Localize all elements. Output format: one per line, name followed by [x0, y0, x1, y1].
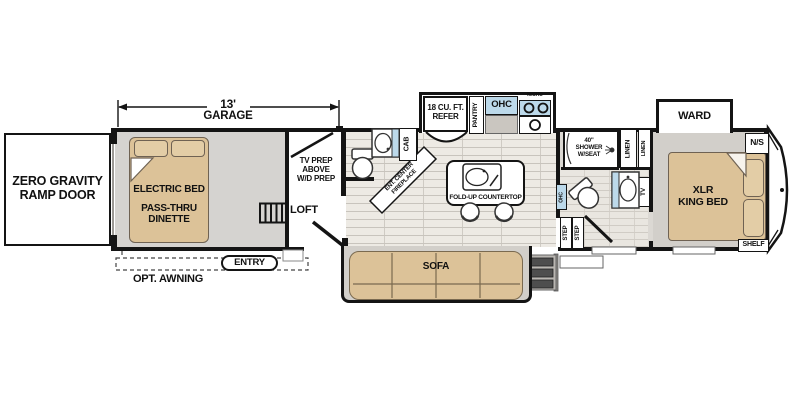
step-2-label: STEP	[572, 217, 584, 249]
microwave-cabinet	[519, 100, 551, 116]
ramp-door-label: ZERO GRAVITY RAMP DOOR	[8, 175, 107, 203]
sofa	[349, 251, 523, 300]
kitchen-counter	[485, 115, 518, 134]
ohc-label: OHC	[485, 100, 518, 110]
linen-2-label: LINEN	[639, 129, 650, 168]
dim-corner	[336, 126, 343, 132]
entry-label: ENTRY	[221, 258, 278, 268]
dim-arrow-left	[118, 104, 127, 111]
countertop-label: FOLD-UP COUNTERTOP	[447, 194, 524, 201]
nightstand-label: N/S	[745, 138, 769, 147]
dim-arrow-right	[330, 104, 339, 111]
pantry-label: PANTRY	[471, 96, 481, 134]
dim-garage-label: GARAGE	[188, 110, 268, 123]
sofa-label: SOFA	[396, 261, 476, 272]
awning-outline	[116, 251, 308, 270]
shelf-label: SHELF	[738, 241, 769, 249]
opt-awning-label: OPT. AWNING	[108, 273, 228, 285]
loft-label: LOFT	[279, 204, 329, 216]
garage-bed-pillow-right	[171, 140, 205, 157]
bath-ohc-label: OHC	[557, 184, 566, 210]
electric-bed-label: ELECTRIC BED	[123, 184, 215, 195]
micro-label: MICRO	[519, 93, 551, 99]
bath-door-swing	[585, 216, 612, 242]
cooktop	[519, 116, 551, 134]
ward-label: WARD	[656, 110, 733, 122]
entry-door-swing	[313, 222, 346, 248]
loft-door-swing	[291, 133, 333, 157]
bed-pillow-top	[743, 159, 764, 197]
step-1-label: STEP	[560, 217, 572, 249]
front-nose-cap	[768, 128, 787, 251]
dinette-label: PASS-THRU DINETTE	[123, 203, 215, 225]
ramp-opening-line	[112, 144, 114, 235]
linen-1-label: LINEN	[623, 130, 635, 169]
rv-floorplan: 13' GARAGE ZERO GRAVITY RAMP DOOR ELECTR…	[0, 0, 800, 400]
tv-prep-label: TV PREP ABOVE W/D PREP	[286, 157, 346, 183]
refer-label: 18 CU. FT. REFER	[423, 104, 468, 122]
cab-label: CAB	[403, 128, 413, 161]
king-bed-label: XLR KING BED	[663, 185, 743, 208]
bed-pillow-bottom	[743, 199, 764, 237]
tv-label: TV	[639, 177, 649, 207]
shower-label: 40" SHOWER W/SEAT	[567, 138, 611, 158]
garage-bed-pillow-left	[134, 140, 168, 157]
